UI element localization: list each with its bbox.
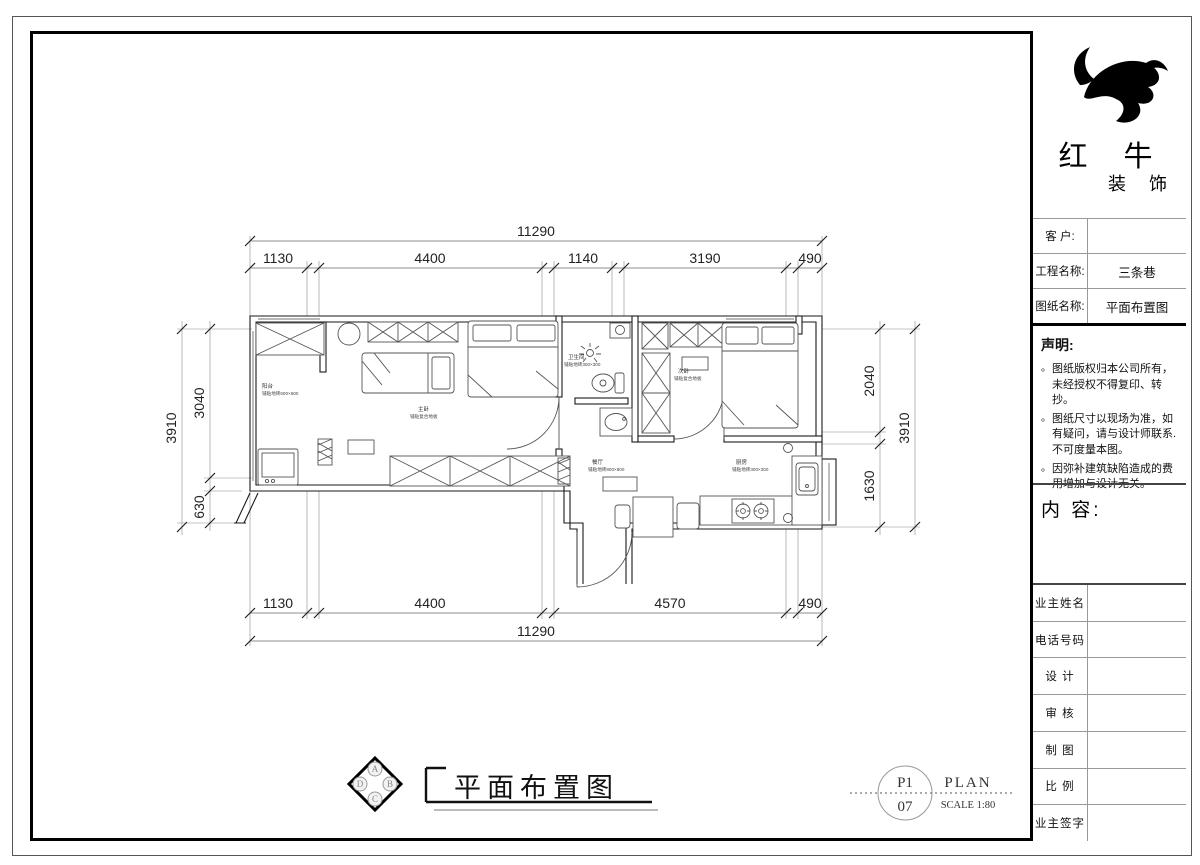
dining-chair-left <box>615 505 630 528</box>
sheet-title: 平面布置图 <box>454 773 619 803</box>
dining-furniture <box>603 477 699 537</box>
sign-row-phone: 电话号码 <box>1033 621 1186 658</box>
svg-text:铺贴地砖600×600: 铺贴地砖600×600 <box>262 390 299 397</box>
dim-top-4: 3190 <box>689 250 720 266</box>
dim-bot-2: 4400 <box>414 595 445 611</box>
gas-stove <box>732 499 774 523</box>
round-table <box>338 323 360 345</box>
svg-text:铺贴地砖300×300: 铺贴地砖300×300 <box>564 361 601 368</box>
drawing-sheet: 11290 1130 4400 1140 3190 490 1130 4400 … <box>0 0 1200 865</box>
title-block: 红 牛 装 饰 客 户: 工程名称: 三条巷 图纸名称: 平面布置图 声明: 。… <box>1030 31 1186 841</box>
dining-table <box>633 497 673 537</box>
field-client-label: 客 户: <box>1033 219 1088 253</box>
dimension-numbers: 11290 1130 4400 1140 3190 490 1130 4400 … <box>163 223 912 639</box>
wash-basin <box>600 408 632 436</box>
content-label: 内 容: <box>1041 495 1178 522</box>
double-bed-master <box>468 321 558 397</box>
dim-left-1: 3040 <box>191 387 207 418</box>
svg-text:铺贴地砖300×300: 铺贴地砖300×300 <box>732 466 769 473</box>
single-bed <box>362 353 454 393</box>
compass-letter-b: B <box>387 779 393 789</box>
door-entry <box>577 532 632 587</box>
dim-top-2: 4400 <box>414 250 445 266</box>
statement-text-2: 图纸尺寸以现场为准，如有疑问，请与设计师联系. 不可度量本图。 <box>1052 412 1180 459</box>
sideboard <box>603 477 637 491</box>
dim-bot-4: 490 <box>798 595 822 611</box>
bedroom2-furniture <box>642 323 798 433</box>
signature-section: 业主姓名 电话号码 设 计 审 核 制 图 比 例 <box>1033 583 1186 841</box>
washing-machine <box>258 449 298 485</box>
compass-letter-a: A <box>372 764 379 774</box>
sign-row-draft: 制 图 <box>1033 731 1186 768</box>
dim-bottom-total: 11290 <box>517 623 555 639</box>
wall-pier-hatch <box>318 439 332 465</box>
pipe-riser-top <box>784 444 793 453</box>
svg-text:铺贴复合地板: 铺贴复合地板 <box>674 375 702 382</box>
statement-text-1: 图纸版权归本公司所有，未经授权不得复印、转抄。 <box>1052 362 1180 409</box>
dim-left-total: 3910 <box>163 412 179 443</box>
kitchen-sink <box>796 463 818 495</box>
field-project-label: 工程名称: <box>1033 254 1088 288</box>
sign-row-scale: 比 例 <box>1033 768 1186 805</box>
svg-text:铺贴复合地板: 铺贴复合地板 <box>410 413 438 420</box>
dim-left-2: 630 <box>191 495 207 519</box>
field-project-value: 三条巷 <box>1088 262 1186 281</box>
kitchen-furniture <box>700 444 822 526</box>
svg-text:餐厅: 餐厅 <box>592 458 604 466</box>
sign-row-design: 设 计 <box>1033 657 1186 694</box>
floor-plan-drawing: 11290 1130 4400 1140 3190 490 1130 4400 … <box>30 31 1030 837</box>
door-master <box>507 397 559 449</box>
room-label-dining: 餐厅 铺贴地砖800×800 <box>588 458 625 473</box>
dim-top-1: 1130 <box>263 250 293 266</box>
stamp-scale: SCALE 1:80 <box>941 800 996 811</box>
svg-text:厨房: 厨房 <box>736 458 748 466</box>
svg-text:卫生间: 卫生间 <box>568 353 585 361</box>
field-drawing-value: 平面布置图 <box>1088 297 1186 316</box>
sign-row-owner-signature: 业主签字 <box>1033 804 1186 841</box>
tv-cabinet <box>348 440 570 486</box>
dim-top-total: 11290 <box>517 223 555 239</box>
field-client: 客 户: <box>1033 218 1186 253</box>
svg-text:次卧: 次卧 <box>678 367 690 375</box>
dining-chair-right <box>677 503 699 529</box>
company-logo-area: 红 牛 装 饰 <box>1033 31 1186 218</box>
company-name: 红 牛 <box>1039 142 1186 172</box>
field-project: 工程名称: 三条巷 <box>1033 253 1186 288</box>
svg-text:铺贴地砖800×800: 铺贴地砖800×800 <box>588 466 625 473</box>
company-subname: 装 饰 <box>1033 172 1186 196</box>
dim-top-3: 1140 <box>568 250 598 266</box>
statement-section: 声明: 。 图纸版权归本公司所有，未经授权不得复印、转抄。 。 图纸尺寸以现场为… <box>1033 323 1186 483</box>
sign-row-owner-name: 业主姓名 <box>1033 585 1186 621</box>
room-label-kitchen: 厨房 铺贴地砖300×300 <box>732 458 769 473</box>
compass-letter-d: D <box>357 779 364 789</box>
dim-right-total: 3910 <box>896 412 912 443</box>
dim-bot-1: 1130 <box>263 595 293 611</box>
bathroom-fixtures <box>579 323 632 436</box>
svg-text:阳台: 阳台 <box>262 382 274 390</box>
bullet: 。 <box>1041 362 1052 409</box>
door-bedroom2 <box>674 389 724 439</box>
dim-right-2: 1630 <box>861 470 877 501</box>
sheet-stamp: P1 07 PLAN SCALE 1:80 <box>850 766 1015 820</box>
sign-row-review: 审 核 <box>1033 694 1186 731</box>
room-label-bathroom: 卫生间 铺贴地砖300×300 <box>564 353 601 368</box>
dim-top-5: 490 <box>798 250 822 266</box>
double-bed-2 <box>722 323 798 428</box>
stamp-page: P1 <box>897 775 913 791</box>
room-label-balcony: 阳台 铺贴地砖600×600 <box>262 382 299 397</box>
room-label-master: 主卧 铺贴复合地板 <box>410 405 438 420</box>
stamp-type: PLAN <box>944 775 991 791</box>
bull-logo-icon <box>1046 41 1174 137</box>
dim-bot-3: 4570 <box>654 595 685 611</box>
balcony-furniture <box>256 323 332 485</box>
stamp-number: 07 <box>898 799 914 815</box>
compass-letter-c: C <box>372 794 378 804</box>
sheet-title-group: A B C D 平面布置图 <box>349 758 658 810</box>
toilet <box>592 373 624 393</box>
svg-text:主卧: 主卧 <box>418 405 430 413</box>
master-bedroom-furniture <box>338 321 570 486</box>
statement-title: 声明: <box>1041 335 1180 355</box>
compass-icon: A B C D <box>349 758 401 810</box>
statement-item: 。 图纸尺寸以现场为准，如有疑问，请与设计师联系. 不可度量本图。 <box>1041 412 1180 459</box>
field-drawing: 图纸名称: 平面布置图 <box>1033 288 1186 323</box>
wardrobe <box>642 353 670 433</box>
tv-stand <box>348 440 374 454</box>
statement-item: 。 图纸版权归本公司所有，未经授权不得复印、转抄。 <box>1041 362 1180 409</box>
field-drawing-label: 图纸名称: <box>1033 289 1088 323</box>
dim-right-1: 2040 <box>861 365 877 396</box>
content-section: 内 容: <box>1033 483 1186 583</box>
bullet: 。 <box>1041 412 1052 459</box>
